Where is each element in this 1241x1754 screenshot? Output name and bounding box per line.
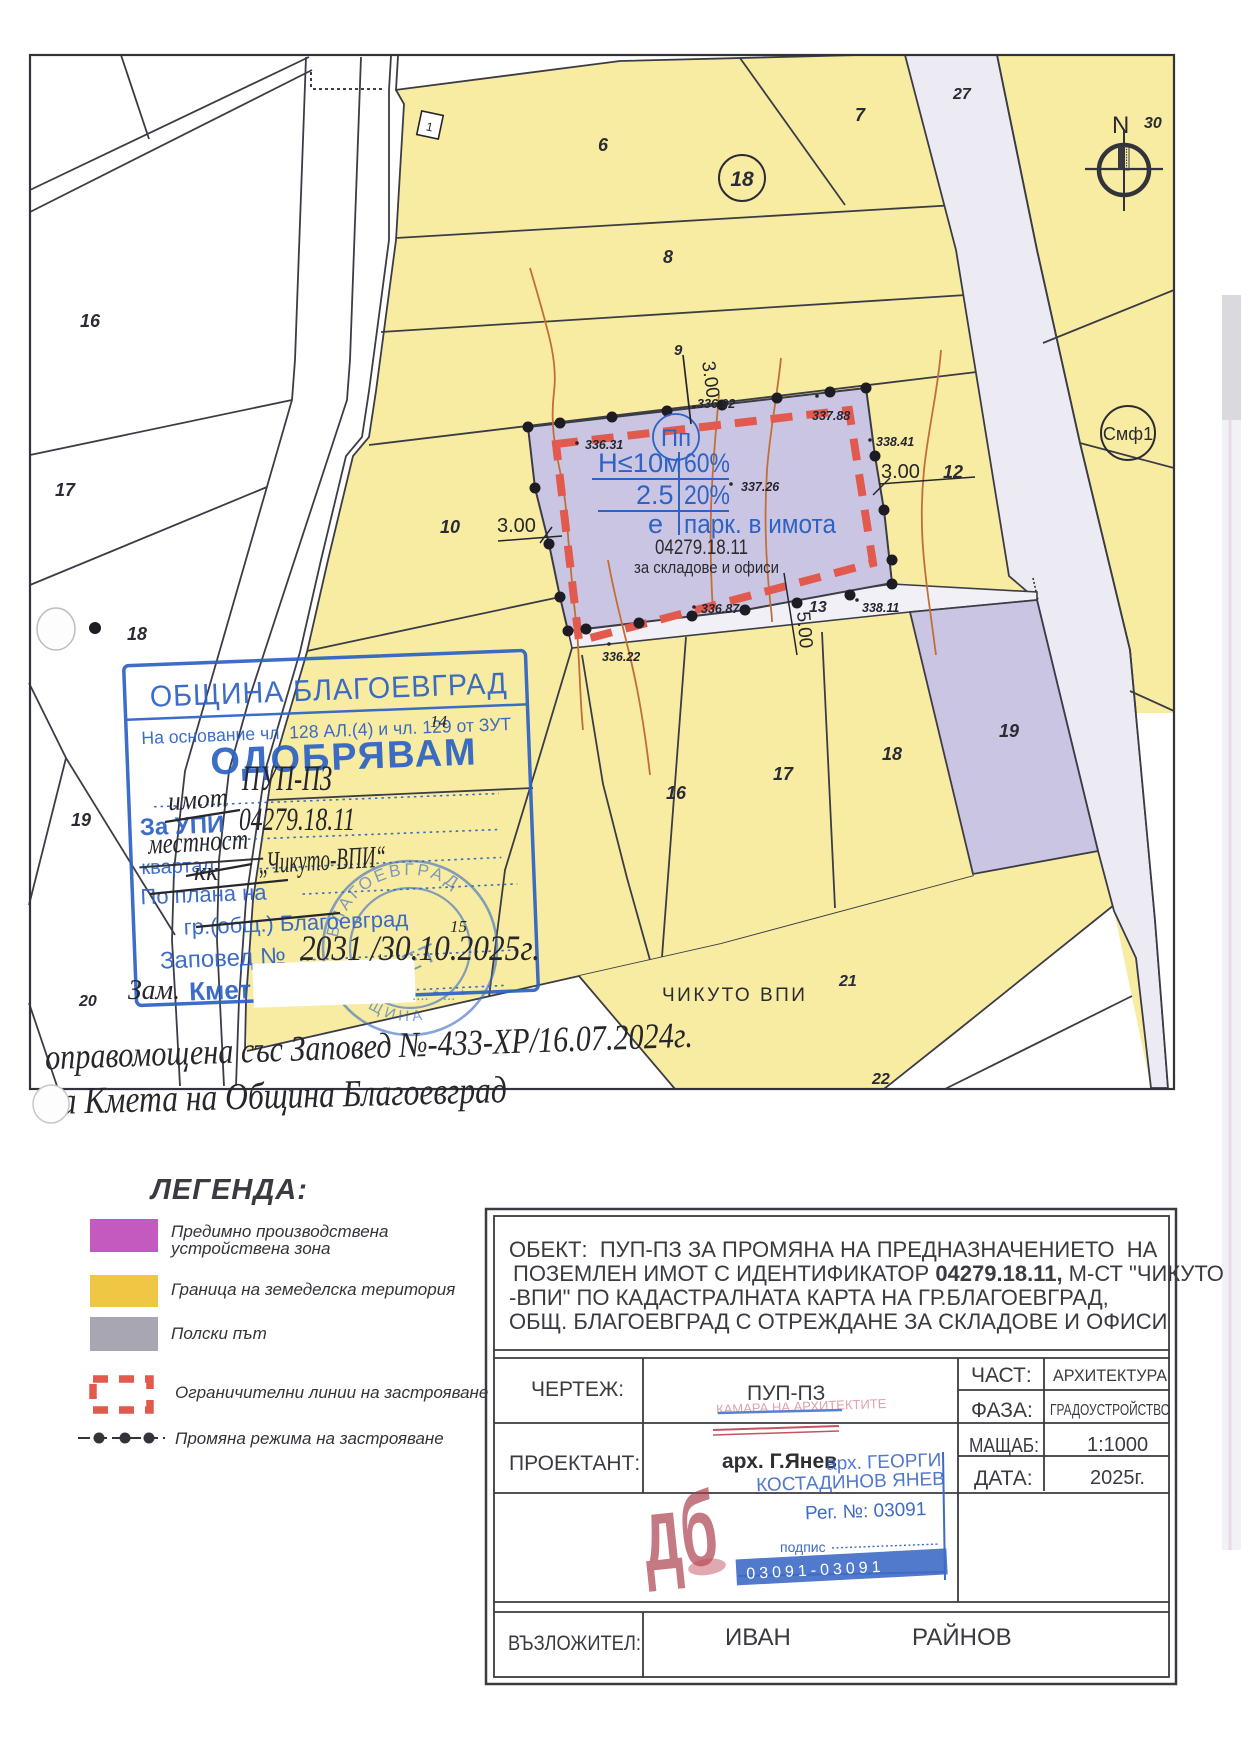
svg-text:ЧЕРТЕЖ:: ЧЕРТЕЖ: — [531, 1378, 624, 1401]
svg-text:18: 18 — [127, 624, 147, 644]
svg-text:20%: 20% — [684, 480, 730, 510]
svg-text:336.31: 336.31 — [585, 438, 623, 452]
svg-text:„Чикуто-ВПИ“: „Чикуто-ВПИ“ — [257, 839, 387, 881]
svg-text:Ограничителни линии на застроя: Ограничителни линии на застрояване — [175, 1383, 488, 1402]
svg-text:13: 13 — [809, 599, 827, 616]
svg-text:30: 30 — [1144, 115, 1162, 132]
svg-text:ГРАДОУСТРОЙСТВО: ГРАДОУСТРОЙСТВО — [1050, 1401, 1170, 1419]
svg-text:2031 /30.10.2025г.: 2031 /30.10.2025г. — [300, 928, 540, 968]
svg-text:12: 12 — [943, 462, 963, 482]
svg-text:ВЪЗЛОЖИТЕЛ:: ВЪЗЛОЖИТЕЛ: — [508, 1632, 641, 1655]
svg-text:ИВАН: ИВАН — [725, 1624, 791, 1651]
svg-text:Промяна режима на застрояване: Промяна режима на застрояване — [175, 1429, 444, 1448]
svg-text:14: 14 — [430, 712, 448, 731]
svg-text:арх. Г.Янев: арх. Г.Янев — [722, 1450, 837, 1473]
svg-text:ДАТА:: ДАТА: — [974, 1467, 1033, 1490]
svg-text:1:1000: 1:1000 — [1087, 1434, 1148, 1456]
svg-text:парк. в имота: парк. в имота — [684, 509, 837, 539]
svg-text:336.22: 336.22 — [602, 650, 640, 664]
svg-text:5.00: 5.00 — [792, 611, 816, 650]
svg-text:18: 18 — [730, 168, 754, 191]
svg-text:338.11: 338.11 — [862, 601, 899, 615]
svg-text:устройствена зона: устройствена зона — [170, 1239, 330, 1258]
svg-text:ОБЩ. БЛАГОЕВГРАД С ОТРЕЖДАНЕ З: ОБЩ. БЛАГОЕВГРАД С ОТРЕЖДАНЕ ЗА СКЛАДОВЕ… — [509, 1309, 1167, 1334]
svg-text:17: 17 — [55, 480, 76, 500]
svg-text:19: 19 — [71, 810, 91, 830]
svg-text:ФАЗА:: ФАЗА: — [971, 1399, 1033, 1422]
svg-text:РАЙНОВ: РАЙНОВ — [912, 1623, 1012, 1651]
svg-text:е: е — [648, 509, 663, 539]
svg-text:ПРОЕКТАНТ:: ПРОЕКТАНТ: — [509, 1452, 640, 1475]
svg-text:6: 6 — [598, 135, 609, 155]
svg-text:336.87: 336.87 — [701, 602, 740, 616]
svg-text:16: 16 — [666, 783, 687, 803]
svg-text:Н≤10м: Н≤10м — [598, 448, 682, 478]
svg-text:338.41: 338.41 — [876, 435, 914, 449]
svg-text:2.5: 2.5 — [636, 480, 674, 510]
svg-text:МАЩАБ:: МАЩАБ: — [969, 1435, 1039, 1457]
svg-text:-ВПИ" ПО КАДАСТРАЛНАТА КАРТА Н: -ВПИ" ПО КАДАСТРАЛНАТА КАРТА НА ГР.БЛАГО… — [509, 1285, 1109, 1310]
svg-text:ПОЗЕМЛЕН ИМОТ С ИДЕНТИФИКАТОР: ПОЗЕМЛЕН ИМОТ С ИДЕНТИФИКАТОР 04279.18.1… — [513, 1261, 1224, 1286]
svg-text:N: N — [1112, 112, 1129, 139]
svg-text:ЧАСТ:: ЧАСТ: — [971, 1364, 1032, 1387]
svg-text:ЧИКУТО ВПИ: ЧИКУТО ВПИ — [662, 985, 807, 1006]
svg-text:подпис: подпис — [780, 1539, 826, 1555]
svg-text:местност: местност — [147, 824, 249, 861]
svg-text:Граница на земеделска територи: Граница на земеделска територия — [171, 1280, 455, 1299]
svg-text:Смф1: Смф1 — [1103, 424, 1153, 444]
svg-text:337.26: 337.26 — [741, 480, 780, 494]
svg-text:04279.18.11: 04279.18.11 — [655, 536, 748, 559]
svg-text:19: 19 — [999, 721, 1019, 741]
svg-text:22: 22 — [871, 1071, 890, 1088]
svg-text:ПУП-ПЗ: ПУП-ПЗ — [241, 758, 332, 798]
svg-text:20: 20 — [78, 993, 97, 1010]
svg-text:8: 8 — [663, 247, 673, 267]
svg-text:2025г.: 2025г. — [1090, 1467, 1145, 1489]
svg-text:3.00: 3.00 — [881, 461, 920, 483]
svg-text:10: 10 — [440, 517, 460, 537]
svg-text:за складове и офиси: за складове и офиси — [634, 558, 779, 577]
svg-text:Рег. №: 03091: Рег. №: 03091 — [805, 1499, 927, 1524]
svg-text:АРХИТЕКТУРА: АРХИТЕКТУРА — [1053, 1366, 1168, 1385]
svg-text:9: 9 — [674, 342, 683, 359]
svg-text:27: 27 — [952, 86, 972, 103]
svg-text:60%: 60% — [684, 448, 730, 478]
svg-text:Полски път: Полски път — [171, 1324, 267, 1343]
svg-text:Кмет:: Кмет: — [189, 974, 261, 1007]
svg-text:04279.18.11: 04279.18.11 — [239, 802, 355, 838]
svg-text:ОБЕКТ: ПУП-ПЗ ЗА ПРОМЯНА НА П: ОБЕКТ: ПУП-ПЗ ЗА ПРОМЯНА НА ПРЕДНАЗНАЧЕН… — [509, 1237, 1158, 1262]
svg-text:ЛЕГЕНДА:: ЛЕГЕНДА: — [149, 1174, 308, 1206]
svg-text:17: 17 — [773, 764, 794, 784]
svg-text:.... * ... *: .... * ... * — [412, 987, 466, 1004]
svg-text:дб: дб — [637, 1470, 723, 1594]
svg-text:337.88: 337.88 — [812, 409, 850, 423]
svg-text:имот: имот — [167, 782, 229, 816]
svg-text:21: 21 — [838, 973, 857, 990]
svg-text:18: 18 — [882, 744, 902, 764]
svg-text:3.00: 3.00 — [497, 515, 536, 537]
svg-text:7: 7 — [855, 105, 866, 125]
svg-text:16: 16 — [80, 311, 101, 331]
svg-text:Зам.: Зам. — [128, 974, 180, 1006]
